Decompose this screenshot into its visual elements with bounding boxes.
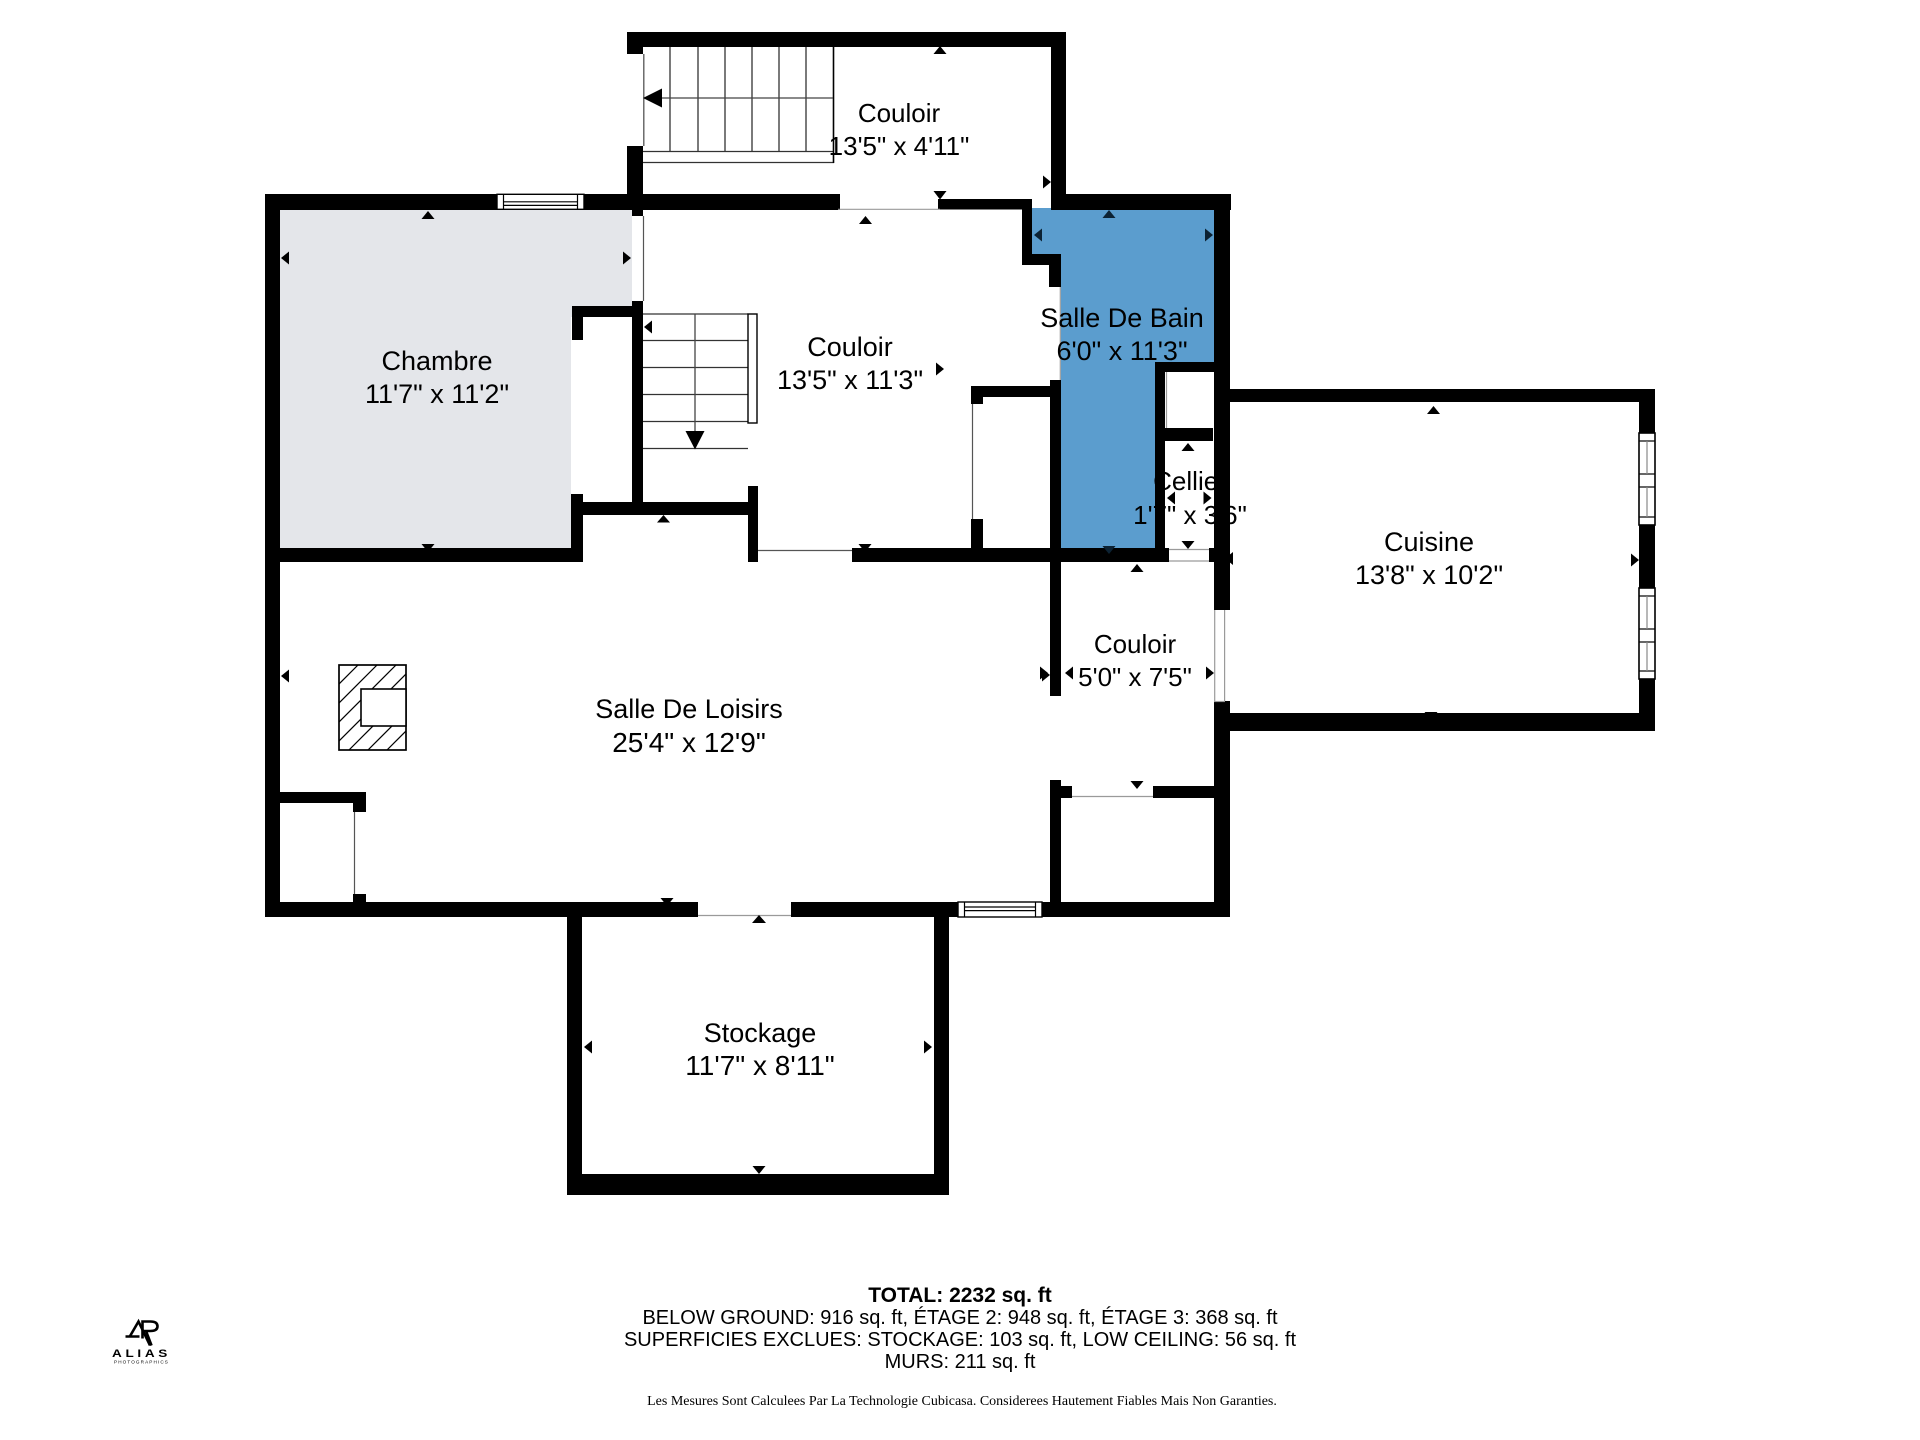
- svg-text:13'8" x 10'2": 13'8" x 10'2": [1355, 560, 1503, 590]
- svg-text:Cellier: Cellier: [1153, 466, 1227, 496]
- svg-text:25'4" x 12'9": 25'4" x 12'9": [612, 727, 766, 758]
- svg-text:13'5" x 11'3": 13'5" x 11'3": [777, 365, 923, 395]
- svg-text:1'7" x 3'6": 1'7" x 3'6": [1133, 500, 1247, 530]
- svg-text:Salle De Bain: Salle De Bain: [1040, 303, 1204, 333]
- svg-text:Cuisine: Cuisine: [1384, 527, 1474, 557]
- svg-text:11'7" x 11'2": 11'7" x 11'2": [365, 379, 509, 409]
- svg-text:5'0" x 7'5": 5'0" x 7'5": [1078, 662, 1192, 692]
- svg-text:Couloir: Couloir: [858, 98, 941, 128]
- svg-text:13'5" x 4'11": 13'5" x 4'11": [829, 131, 970, 161]
- svg-text:Les Mesures Sont Calculees Par: Les Mesures Sont Calculees Par La Techno…: [647, 1394, 1277, 1409]
- svg-text:Chambre: Chambre: [381, 346, 492, 376]
- svg-text:Couloir: Couloir: [1094, 629, 1177, 659]
- svg-text:11'7" x 8'11": 11'7" x 8'11": [685, 1050, 834, 1081]
- svg-text:MURS: 211 sq. ft: MURS: 211 sq. ft: [885, 1351, 1036, 1373]
- svg-text:Salle De Loisirs: Salle De Loisirs: [595, 694, 783, 724]
- svg-text:PHOTOGRAPHICS: PHOTOGRAPHICS: [114, 1360, 169, 1365]
- svg-text:Couloir: Couloir: [807, 332, 893, 362]
- svg-text:ALIAS: ALIAS: [112, 1348, 171, 1360]
- svg-text:6'0" x 11'3": 6'0" x 11'3": [1056, 336, 1187, 366]
- svg-text:SUPERFICIES EXCLUES: STOCKAGE:: SUPERFICIES EXCLUES: STOCKAGE: 103 sq. f…: [624, 1329, 1297, 1351]
- svg-text:TOTAL: 2232 sq. ft: TOTAL: 2232 sq. ft: [868, 1284, 1052, 1307]
- svg-text:BELOW GROUND: 916 sq. ft, ÉTAG: BELOW GROUND: 916 sq. ft, ÉTAGE 2: 948 s…: [642, 1306, 1277, 1329]
- svg-text:Stockage: Stockage: [704, 1018, 817, 1048]
